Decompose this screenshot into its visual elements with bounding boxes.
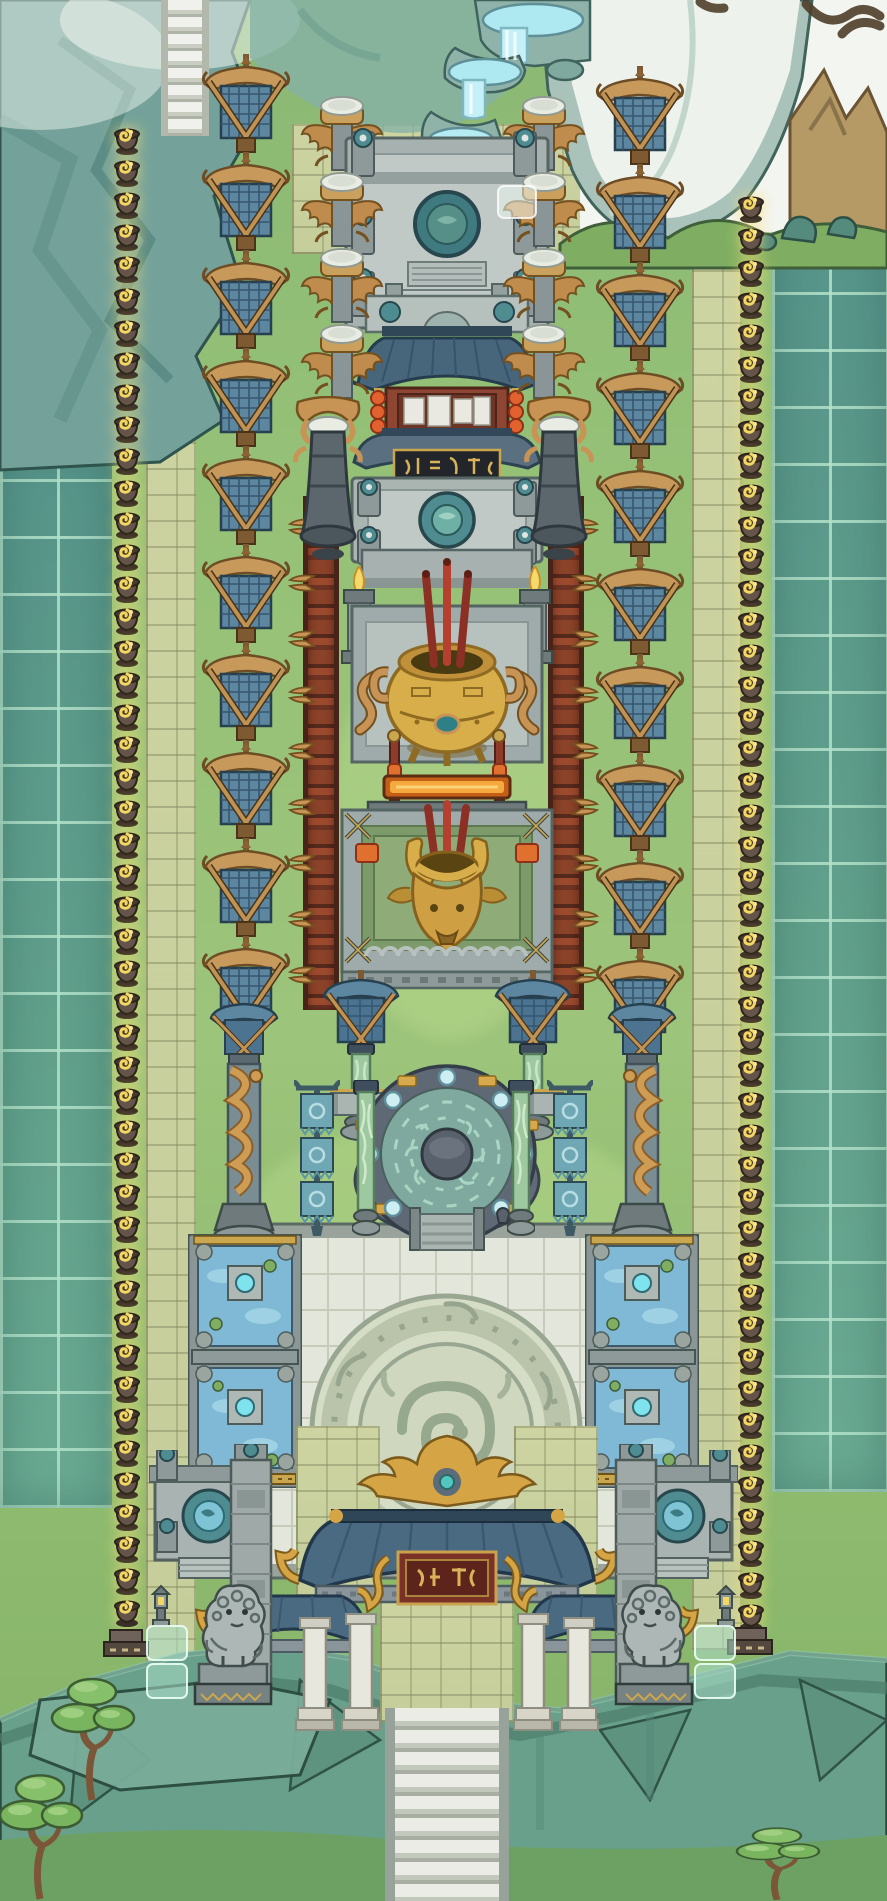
fence-horns-right: [571, 740, 599, 762]
brazier-column-left: [111, 572, 143, 604]
banner-column-right: [593, 654, 687, 756]
brazier-column-right: [735, 320, 767, 352]
stone-lion-right[interactable]: [614, 1568, 694, 1708]
brazier-column-right: [735, 1152, 767, 1184]
brazier-column-left: [111, 988, 143, 1020]
fence-horns-right: [571, 684, 599, 706]
brazier-column-left: [111, 924, 143, 956]
stone-lion-left[interactable]: [193, 1568, 273, 1708]
brazier-column-right: [735, 1440, 767, 1472]
brazier-column-left: [111, 1436, 143, 1468]
flag-stand-left: [294, 1080, 340, 1240]
fence-horns-left: [288, 796, 316, 818]
dragon-column-right[interactable]: [599, 996, 685, 1248]
brazier-column-left: [111, 1276, 143, 1308]
brazier-column-left: [111, 1020, 143, 1052]
pine-tree-2: [0, 1758, 93, 1901]
brazier-column-left: [111, 860, 143, 892]
flag-stand-right: [547, 1080, 593, 1240]
brazier-column-left: [111, 348, 143, 380]
fence-horns-left: [288, 964, 316, 986]
brazier-column-right: [735, 640, 767, 672]
fence-horns-left: [288, 628, 316, 650]
incense-sticks: [422, 558, 472, 664]
fence-horns-right: [571, 852, 599, 874]
tile-field-left: [0, 448, 112, 1508]
banner-column-right: [593, 556, 687, 658]
banner-column-right: [593, 752, 687, 854]
brazier-column-left: [111, 828, 143, 860]
banner-column-left: [199, 250, 293, 352]
brazier-column-right: [735, 1280, 767, 1312]
bottom-stairway[interactable]: [385, 1708, 509, 1901]
brazier-column-right: [735, 704, 767, 736]
brazier-column-right: [735, 1504, 767, 1536]
brazier-column-left: [111, 284, 143, 316]
brazier-column-right: [735, 224, 767, 256]
banner-column-left: [199, 54, 293, 156]
brazier-column-left: [111, 1564, 143, 1596]
brazier-column-left: [111, 1084, 143, 1116]
hanging-bell-right: [521, 396, 597, 568]
brazier-column-left: [111, 412, 143, 444]
brazier-column-right: [735, 512, 767, 544]
brazier-column-left: [111, 1212, 143, 1244]
brazier-column-left: [111, 444, 143, 476]
totem-column-right: [500, 246, 588, 328]
phoenix-crest: [359, 1436, 535, 1506]
banner-column-left: [199, 152, 293, 254]
dragon-column-left[interactable]: [201, 996, 287, 1248]
brazier-column-left: [111, 1500, 143, 1532]
brazier-base-left: [102, 1628, 150, 1660]
brazier-column-left: [111, 252, 143, 284]
brazier-column-right: [735, 1376, 767, 1408]
fence-horns-right: [571, 908, 599, 930]
fence-horns-right: [571, 572, 599, 594]
brazier-column-right: [735, 1312, 767, 1344]
brazier-column-left: [111, 1052, 143, 1084]
jade-column-right: [507, 1080, 535, 1242]
brazier-column-right: [735, 480, 767, 512]
brazier-column-left: [111, 636, 143, 668]
brazier-column-right: [735, 1472, 767, 1504]
brazier-column-right: [735, 768, 767, 800]
totem-column-left: [298, 322, 386, 404]
brazier-column-right: [735, 992, 767, 1024]
brazier-column-left: [111, 956, 143, 988]
brazier-column-right: [735, 736, 767, 768]
fence-horns-right: [571, 964, 599, 986]
brazier-column-left: [111, 764, 143, 796]
banner-column-right: [593, 164, 687, 266]
temple-map: [0, 0, 887, 1901]
brazier-column-right: [735, 960, 767, 992]
banner-column-right: [593, 262, 687, 364]
brazier-column-left: [111, 700, 143, 732]
banner-column-left: [199, 446, 293, 548]
brazier-column-right: [735, 1248, 767, 1280]
brazier-column-right: [735, 672, 767, 704]
brazier-column-left: [111, 508, 143, 540]
glass-tiles-right: [693, 1624, 737, 1700]
brazier-column-left: [111, 892, 143, 924]
brazier-column-right: [735, 1120, 767, 1152]
brazier-column-left: [111, 1468, 143, 1500]
ember-lamp-left: [356, 844, 378, 862]
banner-column-left: [199, 348, 293, 450]
brazier-column-right: [735, 352, 767, 384]
totem-column-left: [298, 246, 386, 328]
banner-column-left: [199, 838, 293, 940]
brazier-column-right: [735, 256, 767, 288]
paper-notices: [404, 396, 490, 426]
brazier-column-right: [735, 1056, 767, 1088]
banner-column-left: [199, 740, 293, 842]
brazier-column-left: [111, 1308, 143, 1340]
brazier-column-left: [111, 1596, 143, 1628]
fence-horns-left: [288, 572, 316, 594]
brazier-column-left: [111, 1532, 143, 1564]
brazier-column-right: [735, 192, 767, 224]
brazier-column-left: [111, 732, 143, 764]
incense-ding-platform[interactable]: [322, 550, 572, 820]
brazier-column-right: [735, 1088, 767, 1120]
brazier-column-left: [111, 1148, 143, 1180]
fence-horns-left: [288, 740, 316, 762]
banner-column-right: [593, 850, 687, 952]
brazier-column-left: [111, 604, 143, 636]
brazier-column-right: [735, 448, 767, 480]
brazier-column-right: [735, 384, 767, 416]
brazier-column-right: [735, 896, 767, 928]
brazier-column-left: [111, 1180, 143, 1212]
brazier-column-left: [111, 1404, 143, 1436]
ghost-tile: [496, 184, 538, 220]
brazier-column-right: [735, 416, 767, 448]
brazier-column-left: [111, 188, 143, 220]
brazier-column-left: [111, 476, 143, 508]
brazier-column-left: [111, 1372, 143, 1404]
brazier-column-right: [735, 1408, 767, 1440]
fence-horns-left: [288, 684, 316, 706]
brazier-column-left: [111, 1340, 143, 1372]
banner-column-left: [199, 544, 293, 646]
brazier-column-left: [111, 540, 143, 572]
ember-lamp-right: [516, 844, 538, 862]
brazier-column-right: [735, 1024, 767, 1056]
stone-lantern-left: [149, 1584, 173, 1628]
totem-column-left: [298, 170, 386, 252]
brazier-column-left: [111, 796, 143, 828]
brazier-column-right: [735, 864, 767, 896]
brazier-column-right: [735, 1184, 767, 1216]
fence-horns-right: [571, 796, 599, 818]
teal-jewel: [435, 715, 459, 733]
jade-column-left: [352, 1080, 380, 1242]
fence-horns-right: [571, 628, 599, 650]
banner-column-right: [593, 66, 687, 168]
brazier-column-right: [735, 576, 767, 608]
brazier-column-right: [735, 288, 767, 320]
brazier-column-left: [111, 1116, 143, 1148]
totem-column-right: [500, 322, 588, 404]
brazier-column-left: [111, 1244, 143, 1276]
brazier-column-right: [735, 832, 767, 864]
brazier-column-left: [111, 380, 143, 412]
brazier-column-right: [735, 800, 767, 832]
brazier-column-left: [111, 316, 143, 348]
brazier-column-right: [735, 1536, 767, 1568]
brazier-column-right: [735, 1344, 767, 1376]
brazier-column-right: [735, 1568, 767, 1600]
banner-column-right: [593, 360, 687, 462]
banner-column-right: [593, 458, 687, 560]
banner-column-left: [199, 642, 293, 744]
brazier-column-left: [111, 156, 143, 188]
brazier-column-right: [735, 1216, 767, 1248]
brazier-column-left: [111, 668, 143, 700]
brazier-column-right: [735, 608, 767, 640]
brazier-column-right: [735, 928, 767, 960]
fence-horns-left: [288, 852, 316, 874]
glass-tiles-left: [145, 1624, 189, 1700]
fence-horns-left: [288, 908, 316, 930]
pine-tree-3: [725, 1818, 830, 1901]
hanging-bell-left: [290, 396, 366, 568]
brazier-column-right: [735, 544, 767, 576]
brazier-column-left: [111, 220, 143, 252]
brazier-column-left: [111, 124, 143, 156]
